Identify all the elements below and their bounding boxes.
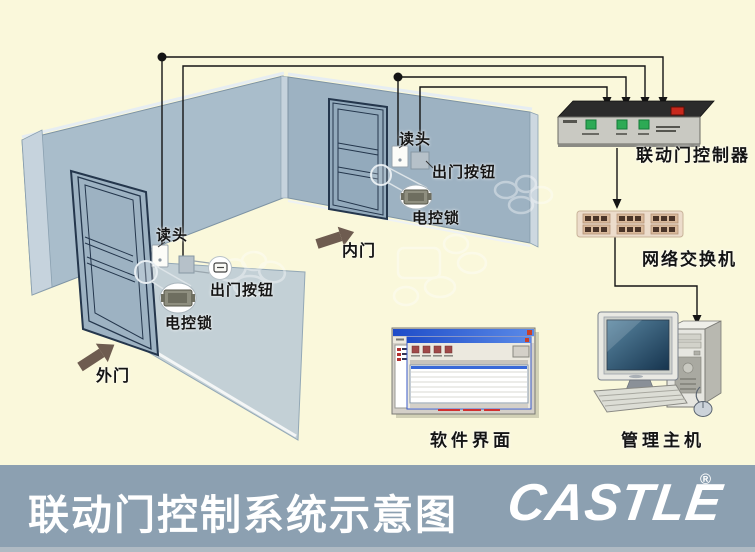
label-outer-lock: 电控锁 (165, 312, 213, 333)
label-outer-door: 外门 (96, 362, 130, 386)
page-title: 联动门控制系统示意图 (28, 481, 458, 541)
label-inner-exit-button: 出门按钮 (432, 161, 496, 182)
label-software-ui: 软件界面 (430, 426, 514, 451)
label-management-host: 管理主机 (621, 426, 705, 451)
network-switch-device (577, 211, 683, 237)
title-banner: 联动门控制系统示意图 CASTLE ® (0, 465, 755, 552)
label-controller: 联动门控制器 (636, 141, 750, 166)
label-inner-door: 内门 (342, 237, 376, 261)
management-computer (594, 312, 721, 417)
brand-logo: CASTLE (504, 473, 726, 533)
registered-trademark-icon: ® (700, 471, 711, 488)
label-inner-reader: 读头 (399, 128, 431, 149)
label-network-switch: 网络交换机 (642, 245, 737, 270)
software-window (392, 328, 539, 418)
outer-card-reader-icon (152, 242, 168, 267)
label-inner-lock: 电控锁 (412, 207, 460, 228)
system-diagram-graphic (0, 0, 755, 465)
label-outer-reader: 读头 (156, 224, 188, 245)
schematic-page: 读头 出门按钮 电控锁 外门 读头 出门按钮 电控锁 内门 联动门控制器 网络交… (0, 0, 755, 552)
banner-bottom-strip (0, 547, 755, 552)
inner-door (329, 99, 387, 219)
label-outer-exit-button: 出门按钮 (210, 279, 274, 300)
